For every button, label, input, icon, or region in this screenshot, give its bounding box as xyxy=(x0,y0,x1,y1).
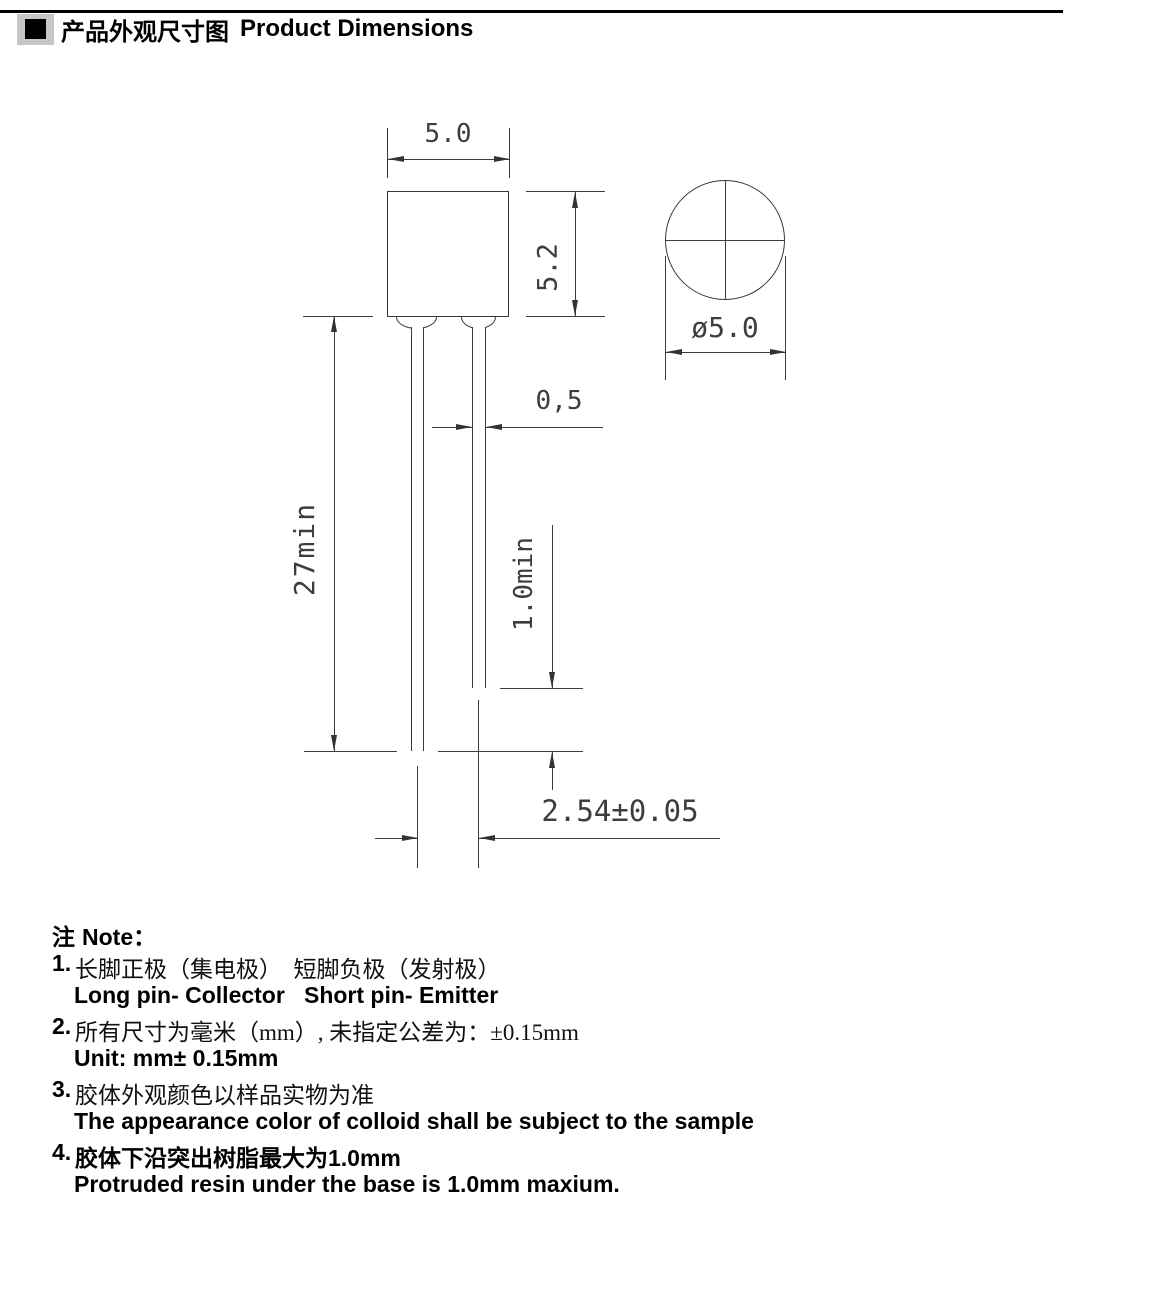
note-item-2-en: Unit: mm± 0.15mm xyxy=(74,1045,278,1072)
note-item-3-en: The appearance color of colloid shall be… xyxy=(74,1108,754,1135)
note-item-1-en: Long pin- Collector Short pin- Emitter xyxy=(74,982,498,1009)
note-item-4-zh: 4. 胶体下沿突出树脂最大为1.0mm xyxy=(52,1139,401,1173)
note-item-2-zh: 2. 所有尺寸为毫米（mm）, 未指定公差为：±0.15mm xyxy=(52,1013,579,1047)
note-item-4-en: Protruded resin under the base is 1.0mm … xyxy=(74,1171,620,1198)
note-text-zh: 所有尺寸为毫米（mm）, 未指定公差为：±0.15mm xyxy=(75,1013,579,1047)
note-item-3-zh: 3. 胶体外观颜色以样品实物为准 xyxy=(52,1076,374,1110)
note-text-zh: 长脚正极（集电极） 短脚负极（发射极） xyxy=(75,950,501,984)
notes-section: 注 Note： 1. 长脚正极（集电极） 短脚负极（发射极） Long pin-… xyxy=(0,0,1159,1301)
note-text-zh: 胶体外观颜色以样品实物为准 xyxy=(75,1076,374,1110)
note-number: 1. xyxy=(52,950,75,977)
datasheet-page: 产品外观尺寸图 Product Dimensions 5.0 5.2 xyxy=(0,0,1159,1301)
notes-header-zh: 注 xyxy=(52,918,75,952)
notes-header-en: Note： xyxy=(82,918,156,952)
note-number: 3. xyxy=(52,1076,75,1103)
note-item-1-zh: 1. 长脚正极（集电极） 短脚负极（发射极） xyxy=(52,950,501,984)
note-number: 2. xyxy=(52,1013,75,1040)
note-text-zh: 胶体下沿突出树脂最大为1.0mm xyxy=(75,1139,401,1173)
notes-header: 注 Note： xyxy=(52,918,156,952)
note-number: 4. xyxy=(52,1139,75,1166)
